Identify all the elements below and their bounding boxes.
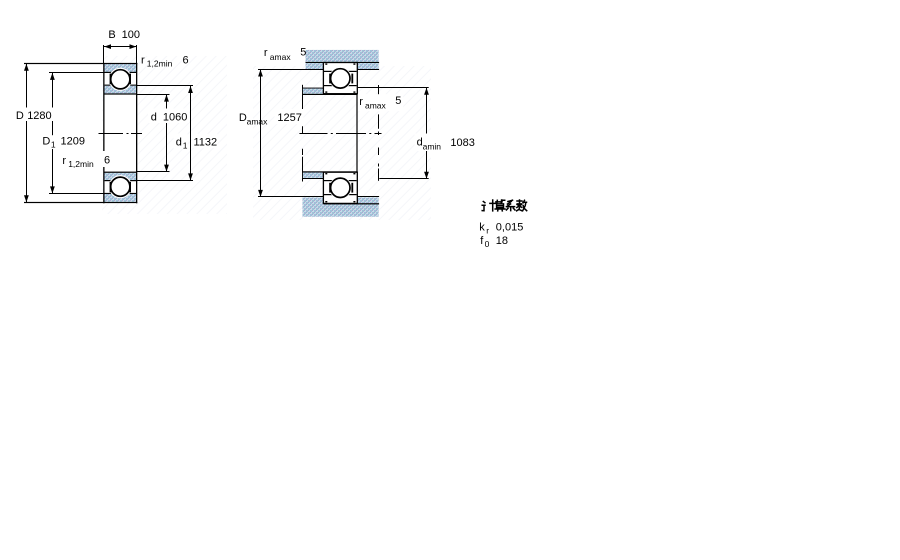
svg-text:d: d xyxy=(176,137,182,149)
svg-text:r: r xyxy=(62,155,66,167)
svg-text:k: k xyxy=(479,222,485,234)
svg-text:D: D xyxy=(42,135,50,147)
svg-text:amax: amax xyxy=(270,52,292,62)
svg-text:6: 6 xyxy=(183,55,189,67)
svg-text:0,015: 0,015 xyxy=(496,222,524,234)
svg-text:amax: amax xyxy=(365,100,387,110)
svg-text:r: r xyxy=(486,225,489,235)
svg-text:1209: 1209 xyxy=(61,136,85,148)
svg-text:1: 1 xyxy=(51,140,56,150)
svg-text:D: D xyxy=(16,110,24,122)
svg-text:1280: 1280 xyxy=(27,110,51,122)
svg-text:0: 0 xyxy=(485,239,490,249)
svg-text:B: B xyxy=(108,29,115,41)
svg-text:1132: 1132 xyxy=(194,137,218,149)
svg-text:r: r xyxy=(141,55,145,67)
svg-text:1,2min: 1,2min xyxy=(147,59,173,69)
svg-text:1060: 1060 xyxy=(163,111,187,123)
svg-text:amin: amin xyxy=(423,142,442,152)
svg-text:5: 5 xyxy=(395,95,401,107)
svg-text:18: 18 xyxy=(496,235,508,247)
svg-text:d: d xyxy=(151,111,157,123)
svg-text:amax: amax xyxy=(247,117,269,127)
svg-text:100: 100 xyxy=(122,29,140,41)
svg-text:5: 5 xyxy=(300,46,306,58)
svg-text:1083: 1083 xyxy=(450,137,474,149)
svg-text:1: 1 xyxy=(183,140,188,150)
svg-text:r: r xyxy=(264,47,268,59)
svg-text:r: r xyxy=(359,96,363,108)
svg-text:1257: 1257 xyxy=(277,112,301,124)
svg-text:6: 6 xyxy=(104,155,110,167)
svg-text:1,2min: 1,2min xyxy=(68,159,94,169)
